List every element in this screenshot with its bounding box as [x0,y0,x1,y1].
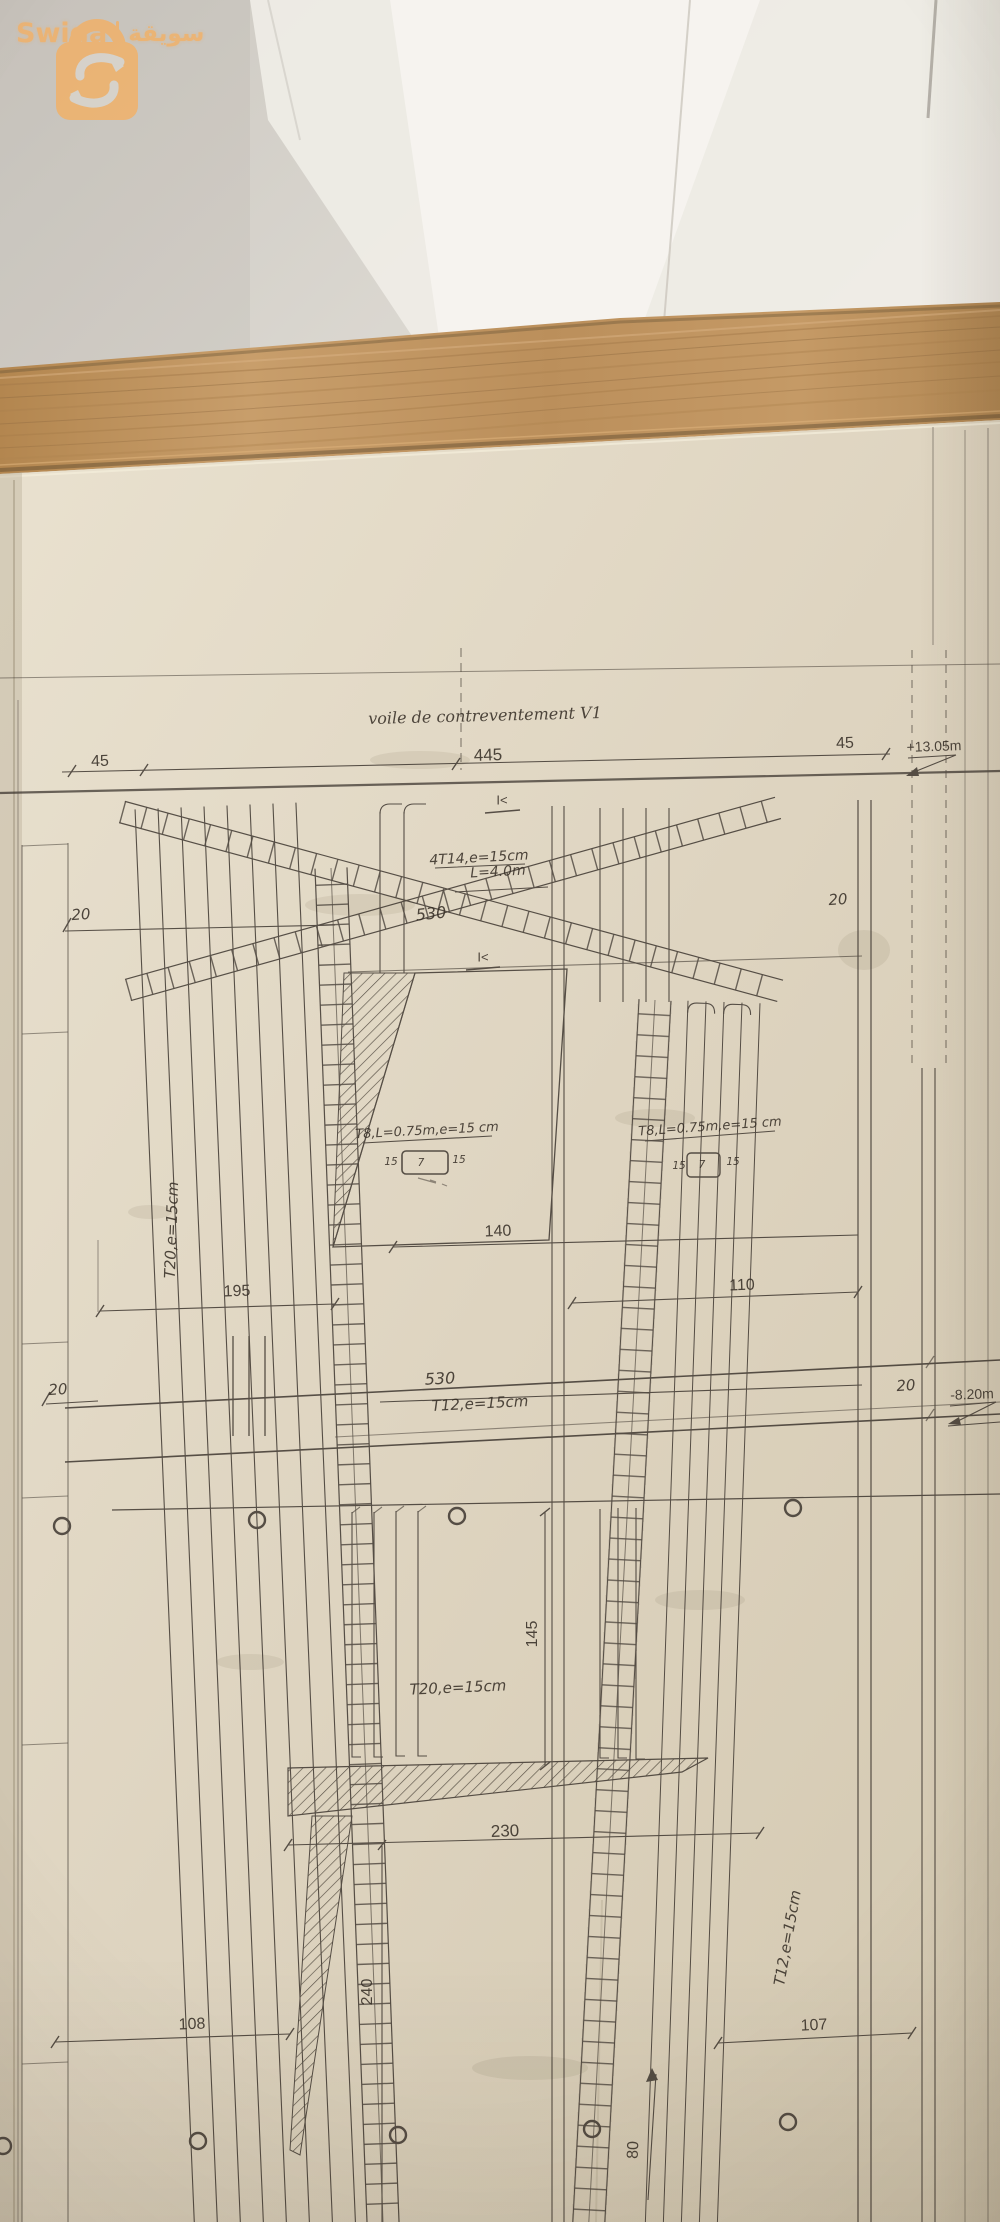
dim-20-upper-right: 20 [828,892,848,908]
tie-right-height: 7 [699,1160,706,1171]
tie-left-width-a: 15 [384,1157,397,1168]
dim-20-mid-right: 20 [896,1378,916,1394]
dim-45-right: 45 [836,736,854,753]
dim-530-upper: 530 [415,904,447,923]
photo-of-blueprint: voile de contreventement V1 45 445 45 +1… [0,0,1000,2222]
dim-20-upper-left: 20 [71,907,91,923]
dim-230: 230 [491,1822,520,1840]
tie-right-width-a: 15 [672,1161,685,1172]
swiga-watermark: Swiga سويقة [12,14,252,49]
rebar-callout-horizontal-mid: T12,e=15cm [431,1394,528,1414]
section-mark-lower: I< [477,951,488,964]
rebar-callout-vertical-right: T12,e=15cm [772,1889,804,1987]
dim-145: 145 [525,1621,541,1648]
dim-107: 107 [800,2017,827,2034]
section-mark-upper: I< [496,794,507,807]
dim-45-left: 45 [91,754,109,771]
rebar-callout-vertical-bottom: T20,e=15cm [409,1678,506,1697]
dim-530-mid: 530 [424,1370,455,1388]
drawing-title: voile de contreventement V1 [368,705,602,727]
tie-left-height: 7 [418,1158,425,1169]
dim-108: 108 [178,2017,205,2034]
rebar-callout-vertical-left: T20,e=15cm [163,1181,181,1278]
level-marker-bottom: -8.20m [950,1386,994,1402]
tie-callout-left: T8,L=0.75m,e=15 cm [355,1121,499,1141]
level-marker-top: +13.05m [906,738,961,754]
bracing-length-callout: L=4.0m [470,864,526,881]
dim-445: 445 [474,746,503,764]
shopping-bag-s-arrow-icon [12,14,212,126]
tie-left-width-b: 15 [452,1155,465,1166]
tie-callout-right: T8,L=0.75m,e=15 cm [638,1116,782,1139]
blueprint-labels: voile de contreventement V1 45 445 45 +1… [0,0,1000,2222]
tie-right-width-b: 15 [726,1157,739,1168]
dim-20-mid-left: 20 [48,1382,68,1398]
dim-140: 140 [484,1224,511,1241]
dim-195: 195 [223,1284,250,1301]
dim-240: 240 [360,1979,376,2006]
dim-110: 110 [729,1278,755,1295]
dim-80: 80 [626,2141,643,2159]
